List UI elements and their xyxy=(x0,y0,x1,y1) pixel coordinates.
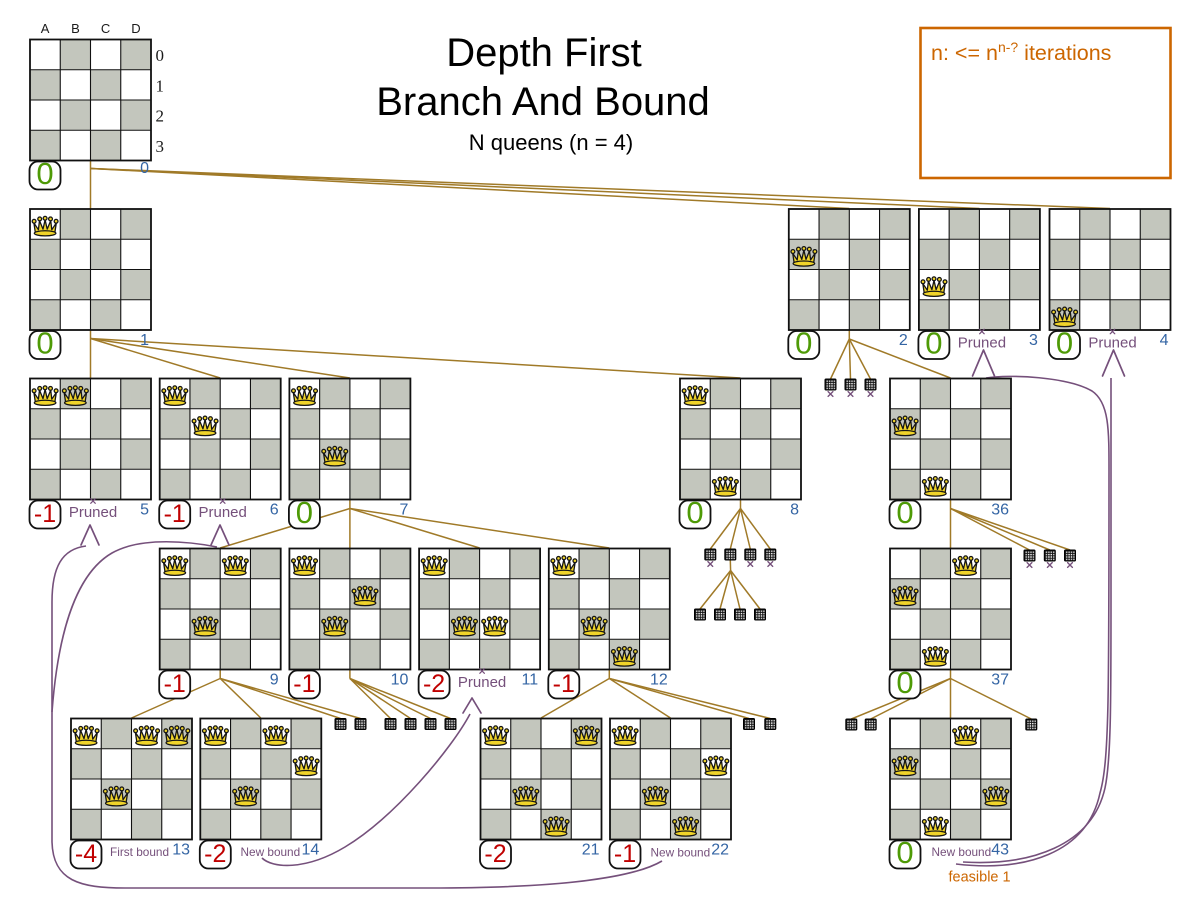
svg-text:0: 0 xyxy=(140,160,149,177)
svg-text:-2: -2 xyxy=(204,840,226,868)
svg-text:Pruned: Pruned xyxy=(199,504,247,521)
svg-text:4: 4 xyxy=(1160,332,1169,349)
svg-text:7: 7 xyxy=(399,502,408,519)
svg-text:21: 21 xyxy=(582,842,600,859)
svg-text:B: B xyxy=(71,21,80,36)
svg-text:N queens (n = 4): N queens (n = 4) xyxy=(469,130,633,155)
svg-text:-1: -1 xyxy=(553,670,575,698)
svg-text:5: 5 xyxy=(140,502,149,519)
svg-text:Pruned: Pruned xyxy=(958,335,1006,352)
svg-text:Pruned: Pruned xyxy=(458,674,506,691)
svg-text:New bound: New bound xyxy=(241,845,301,859)
svg-text:First bound: First bound xyxy=(110,845,169,859)
svg-text:9: 9 xyxy=(270,672,279,689)
svg-text:11: 11 xyxy=(521,672,538,689)
svg-text:0: 0 xyxy=(896,495,913,530)
svg-text:A: A xyxy=(41,21,50,36)
svg-text:Branch And Bound: Branch And Bound xyxy=(376,80,710,124)
svg-text:3: 3 xyxy=(1029,332,1038,349)
svg-text:-1: -1 xyxy=(164,670,186,698)
svg-text:43: 43 xyxy=(991,842,1009,859)
svg-text:0: 0 xyxy=(1056,326,1073,361)
svg-text:New bound: New bound xyxy=(651,846,711,860)
svg-text:n: <= nn-? iterations: n: <= nn-? iterations xyxy=(931,39,1111,65)
svg-text:-2: -2 xyxy=(484,840,506,868)
svg-text:-1: -1 xyxy=(34,500,56,528)
svg-text:New bound: New bound xyxy=(932,845,992,859)
svg-text:10: 10 xyxy=(391,672,409,689)
svg-text:0: 0 xyxy=(925,326,942,361)
svg-text:8: 8 xyxy=(790,502,799,519)
svg-text:-1: -1 xyxy=(164,500,186,528)
svg-text:37: 37 xyxy=(991,672,1009,689)
svg-text:2: 2 xyxy=(899,332,908,349)
svg-text:22: 22 xyxy=(711,842,729,859)
svg-text:-4: -4 xyxy=(75,840,97,868)
svg-text:1: 1 xyxy=(140,332,149,349)
svg-text:D: D xyxy=(131,21,140,36)
svg-text:3: 3 xyxy=(156,137,165,156)
svg-text:0: 0 xyxy=(296,495,313,530)
svg-text:0: 0 xyxy=(795,326,812,361)
svg-text:36: 36 xyxy=(991,502,1009,519)
svg-text:Pruned: Pruned xyxy=(1088,335,1136,352)
svg-text:0: 0 xyxy=(36,326,53,361)
svg-text:0: 0 xyxy=(896,835,913,870)
svg-text:-1: -1 xyxy=(293,670,315,698)
svg-text:Pruned: Pruned xyxy=(69,504,117,521)
svg-text:0: 0 xyxy=(686,495,703,530)
svg-text:12: 12 xyxy=(650,672,668,689)
svg-text:Depth First: Depth First xyxy=(446,31,642,75)
svg-text:-1: -1 xyxy=(614,840,636,868)
svg-text:-2: -2 xyxy=(423,670,445,698)
svg-text:13: 13 xyxy=(172,842,190,859)
svg-text:0: 0 xyxy=(36,156,53,191)
svg-text:C: C xyxy=(101,21,110,36)
svg-text:14: 14 xyxy=(302,842,320,859)
svg-text:1: 1 xyxy=(156,76,165,95)
svg-text:feasible 1: feasible 1 xyxy=(949,870,1011,886)
svg-text:0: 0 xyxy=(156,46,165,65)
svg-text:6: 6 xyxy=(270,502,279,519)
svg-text:2: 2 xyxy=(156,107,165,126)
svg-text:0: 0 xyxy=(896,665,913,700)
